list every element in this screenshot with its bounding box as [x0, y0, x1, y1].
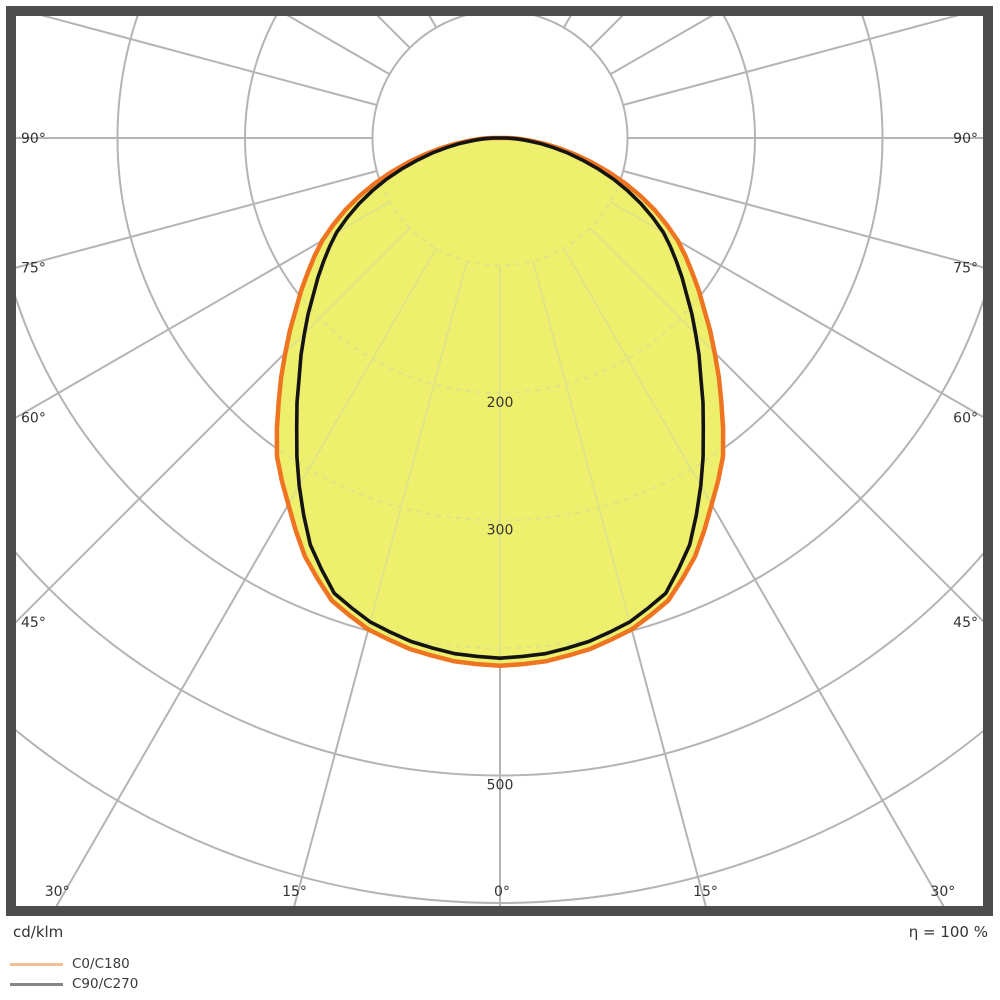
legend-item-c0-c180: C0/C180: [10, 954, 138, 974]
c90-c270-line-swatch: [10, 983, 63, 986]
ring-value-label: 200: [487, 395, 514, 411]
photometric-diagram: 90°90°75°75°60°60°45°45°30°30°15°15°0°20…: [0, 0, 1000, 1000]
gamma-tick-right: 90°: [953, 131, 978, 147]
gamma-tick-bottom: 0°: [494, 884, 510, 900]
efficiency-label: η = 100 %: [909, 923, 988, 941]
legend: C0/C180 C90/C270: [10, 954, 138, 994]
legend-label-c90-c270: C90/C270: [72, 976, 138, 992]
gamma-tick-bottom: 30°: [930, 884, 955, 900]
gamma-tick-bottom: 30°: [45, 884, 70, 900]
gamma-tick-bottom: 15°: [282, 884, 307, 900]
gamma-tick-right: 45°: [953, 615, 978, 631]
c0-c180-line-swatch: [10, 963, 63, 966]
gamma-tick-left: 60°: [21, 410, 46, 426]
gamma-tick-right: 60°: [953, 410, 978, 426]
legend-item-c90-c270: C90/C270: [10, 974, 138, 994]
gamma-tick-left: 75°: [21, 261, 46, 277]
units-label: cd/klm: [13, 923, 63, 941]
gamma-tick-left: 45°: [21, 615, 46, 631]
polar-intensity-chart: 90°90°75°75°60°60°45°45°30°30°15°15°0°20…: [0, 0, 1000, 1000]
gamma-tick-right: 75°: [953, 261, 978, 277]
ring-value-label: 500: [487, 778, 514, 794]
gamma-tick-left: 90°: [21, 131, 46, 147]
gamma-tick-bottom: 15°: [693, 884, 718, 900]
ring-value-label: 300: [487, 523, 514, 539]
legend-label-c0-c180: C0/C180: [72, 956, 130, 972]
